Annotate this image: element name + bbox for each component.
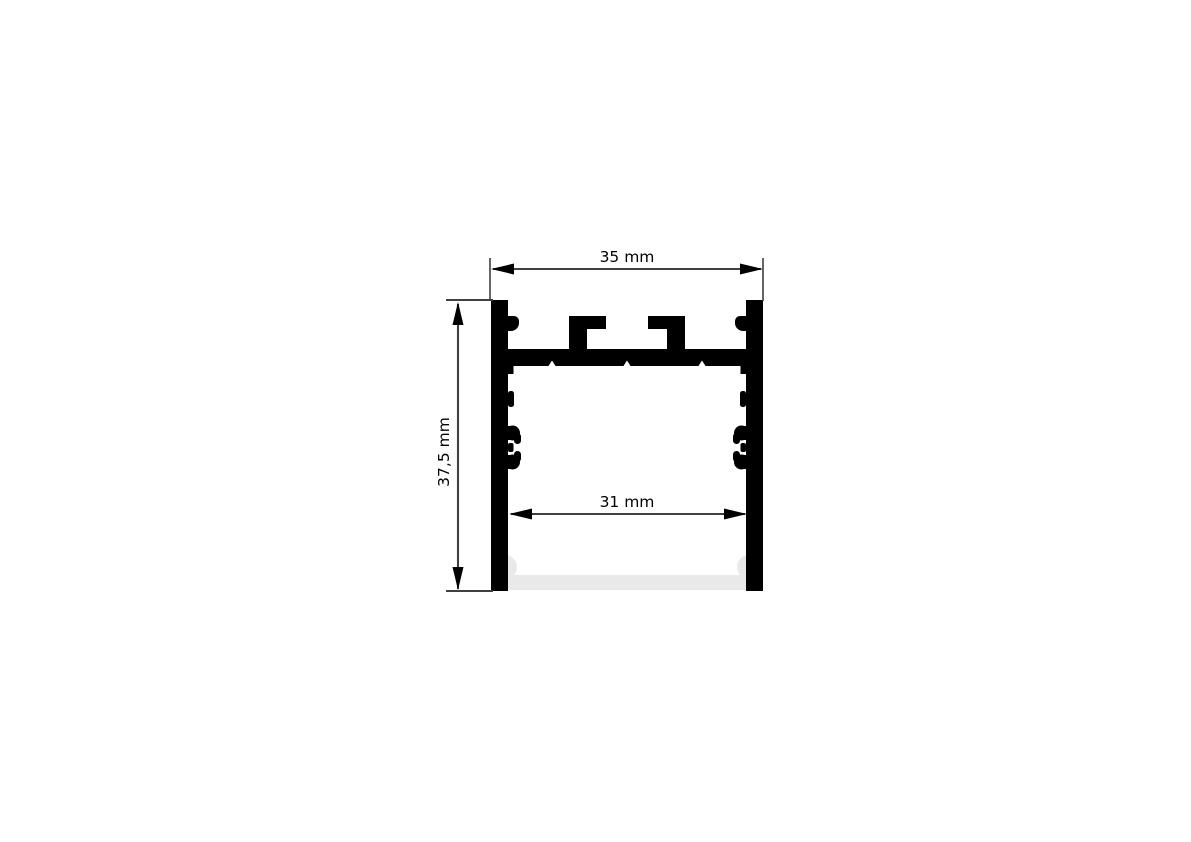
left-wall xyxy=(491,300,508,591)
left-clip-upper-tail xyxy=(514,433,521,444)
arrowhead-right xyxy=(740,264,763,275)
left-clip-lower-tail xyxy=(514,451,521,462)
left-inner-bump xyxy=(508,391,514,407)
height-label: 37,5 mm xyxy=(435,417,453,487)
left-clip-nub xyxy=(508,443,514,452)
profile-body xyxy=(491,300,763,591)
arrowhead-up xyxy=(453,302,464,325)
arrowhead-left xyxy=(509,509,532,520)
left-clip-upper-base xyxy=(508,426,513,440)
arrowhead-down xyxy=(453,567,464,590)
left-center-post xyxy=(569,316,606,349)
arrowhead-left xyxy=(491,264,514,275)
arrowhead-right xyxy=(724,509,747,520)
inner-width-label: 31 mm xyxy=(600,493,655,511)
profile-cross-section-drawing: 35 mm 37,5 mm 31 mm xyxy=(0,0,1191,842)
left-top-hook xyxy=(508,316,519,331)
profile-left-half xyxy=(491,300,606,591)
left-inner-ledge xyxy=(508,366,514,374)
diffuser xyxy=(493,555,761,590)
dimension-height-lines xyxy=(446,300,493,591)
dimension-outer-width: 35 mm xyxy=(490,248,763,301)
profile-right-half xyxy=(648,300,763,591)
dimension-height: 37,5 mm xyxy=(435,300,493,591)
drawing-canvas: 35 mm 37,5 mm 31 mm xyxy=(0,0,1191,842)
diffuser-plate xyxy=(500,575,754,590)
dimension-inner-width: 31 mm xyxy=(509,493,747,520)
left-clip-lower-base xyxy=(508,455,513,469)
outer-width-label: 35 mm xyxy=(600,248,655,266)
